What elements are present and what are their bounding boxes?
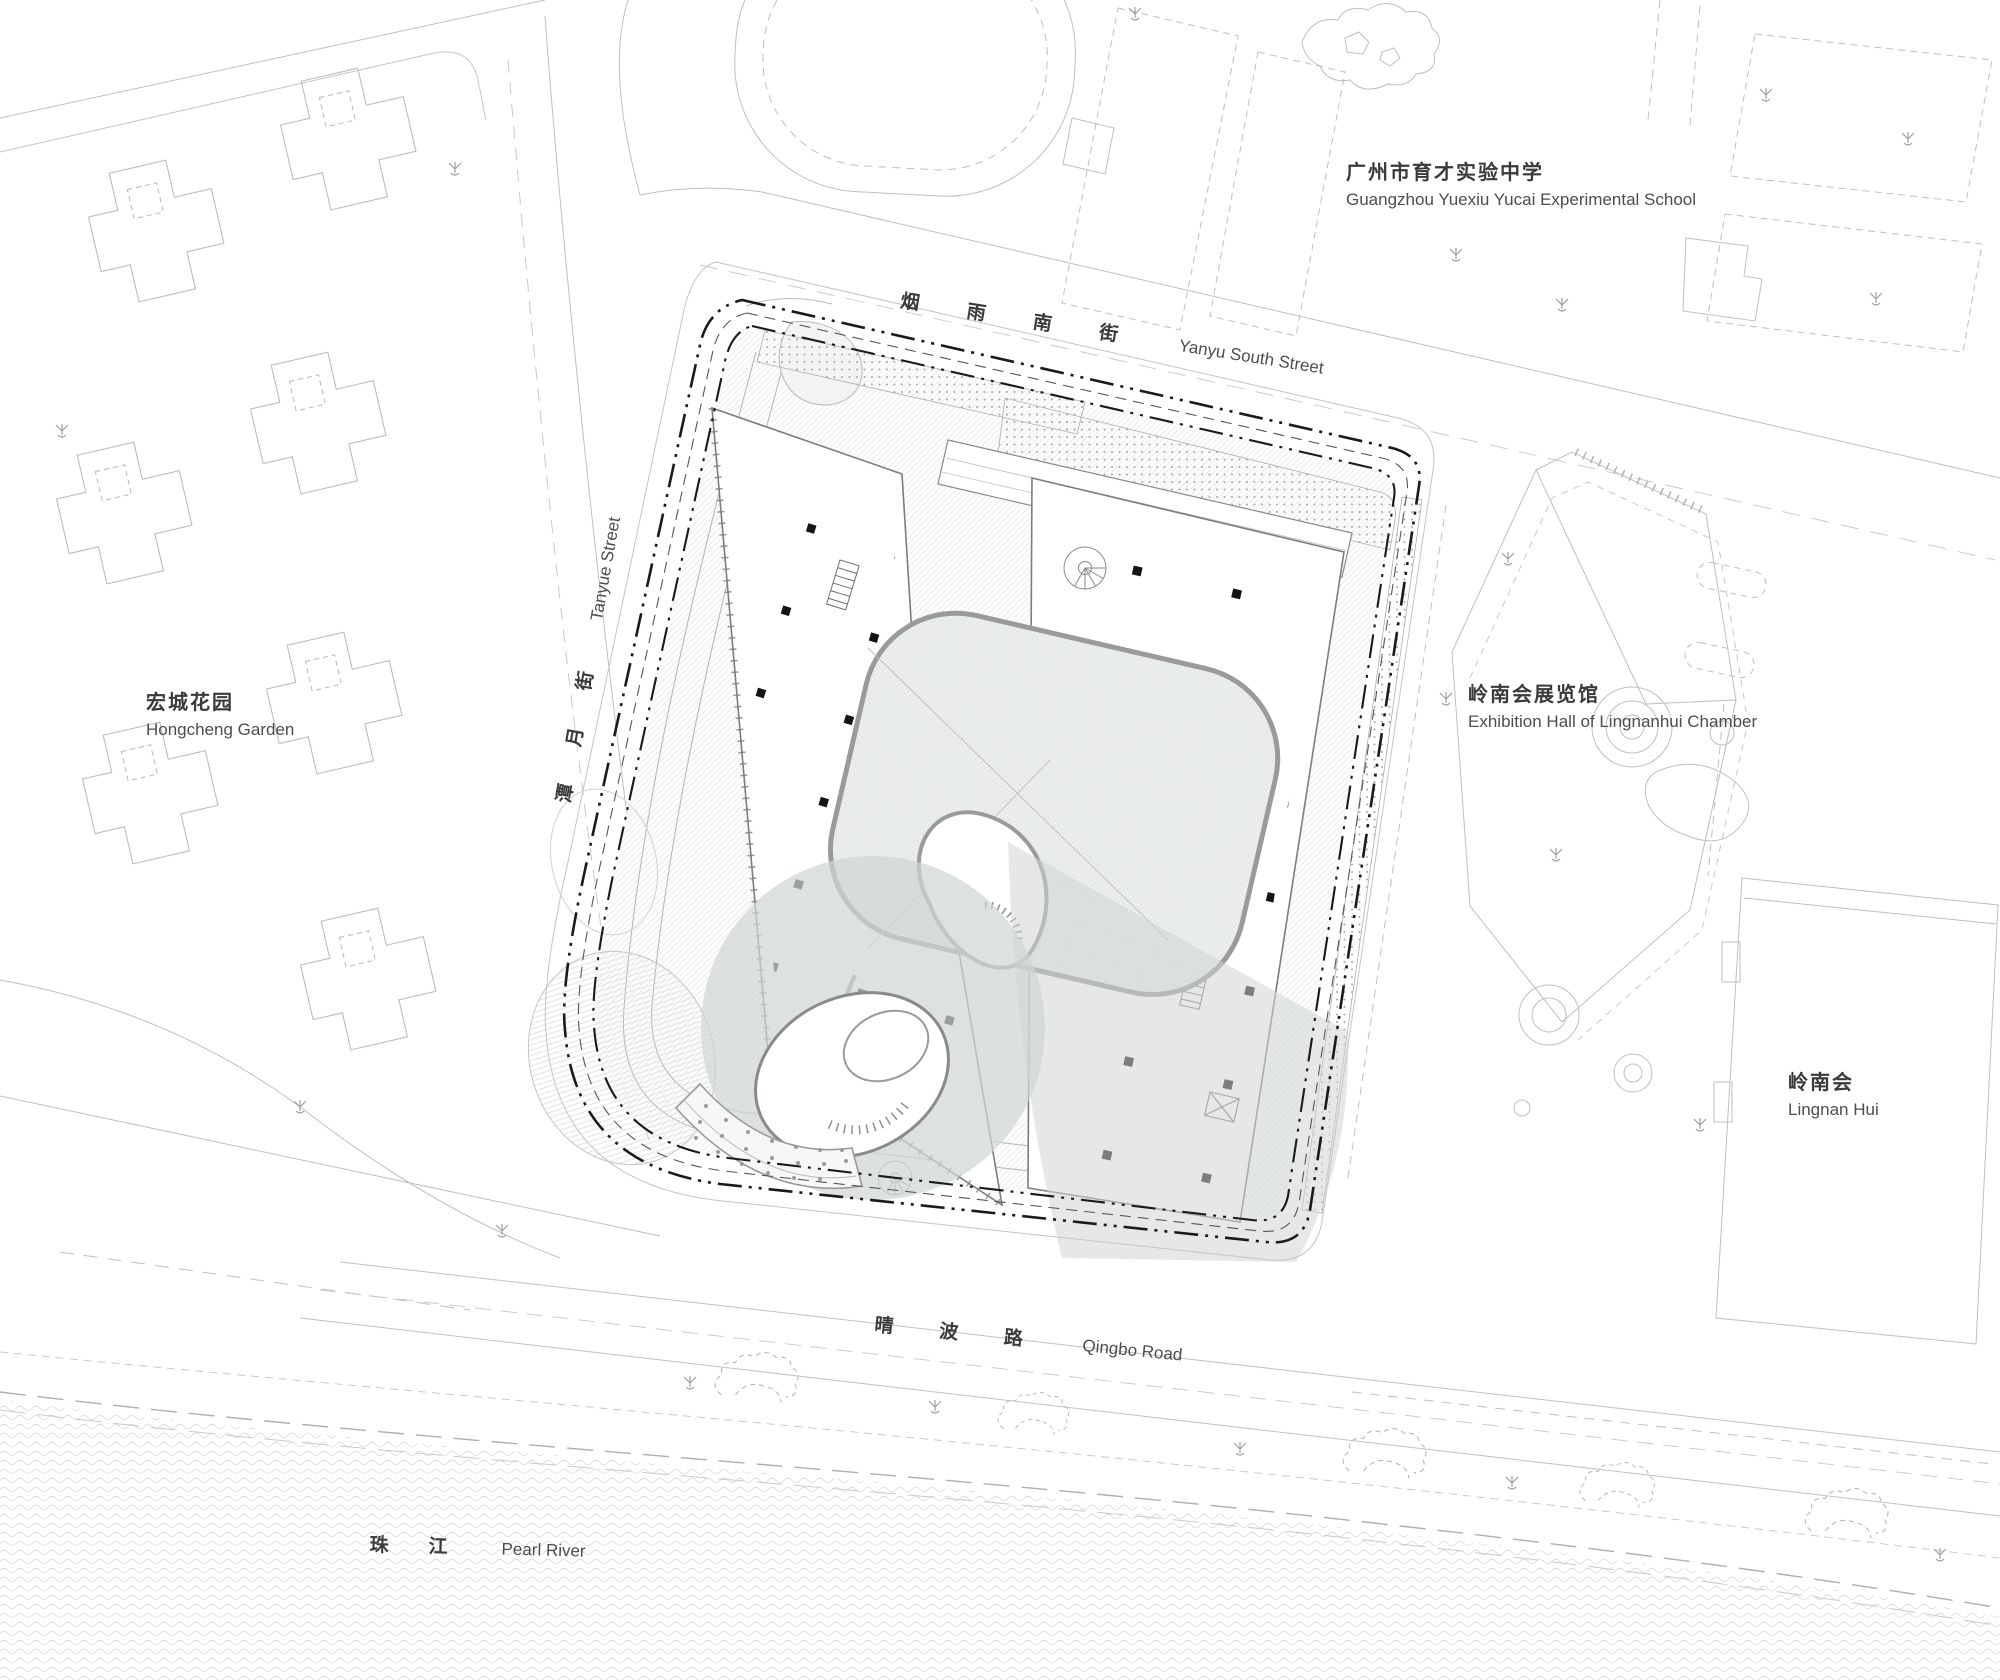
label-hongcheng-cn: 宏城花园 xyxy=(146,686,294,715)
pearl-river xyxy=(0,1392,2000,1680)
label-school-en: Guangzhou Yuexiu Yucai Experimental Scho… xyxy=(1346,190,1696,210)
label-exhibition-cn: 岭南会展览馆 xyxy=(1468,678,1757,707)
label-pearl-en: Pearl River xyxy=(501,1539,586,1561)
site-plan-page: { "labels": { "school": {"cn": "广州市育才实验中… xyxy=(0,0,2000,1680)
label-exhibition-hall: 岭南会展览馆 Exhibition Hall of Lingnanhui Cha… xyxy=(1468,678,1757,732)
context-lingnan-hui xyxy=(1352,878,1998,1464)
label-hongcheng-garden: 宏城花园 Hongcheng Garden xyxy=(146,686,294,740)
label-lingnanhui-en: Lingnan Hui xyxy=(1788,1100,1879,1120)
label-pearl-river: 珠江 Pearl River xyxy=(369,1530,586,1563)
label-school-cn: 广州市育才实验中学 xyxy=(1346,156,1696,185)
label-lingnanhui-cn: 岭南会 xyxy=(1788,1066,1879,1095)
site-plan-drawing xyxy=(0,0,2000,1680)
label-school: 广州市育才实验中学 Guangzhou Yuexiu Yucai Experim… xyxy=(1346,156,1696,210)
label-lingnan-hui: 岭南会 Lingnan Hui xyxy=(1788,1066,1879,1120)
label-pearl-cn: 珠江 xyxy=(369,1530,488,1560)
site-plan-svg xyxy=(0,0,2000,1680)
label-hongcheng-en: Hongcheng Garden xyxy=(146,720,294,740)
label-exhibition-en: Exhibition Hall of Lingnanhui Chamber xyxy=(1468,712,1757,732)
